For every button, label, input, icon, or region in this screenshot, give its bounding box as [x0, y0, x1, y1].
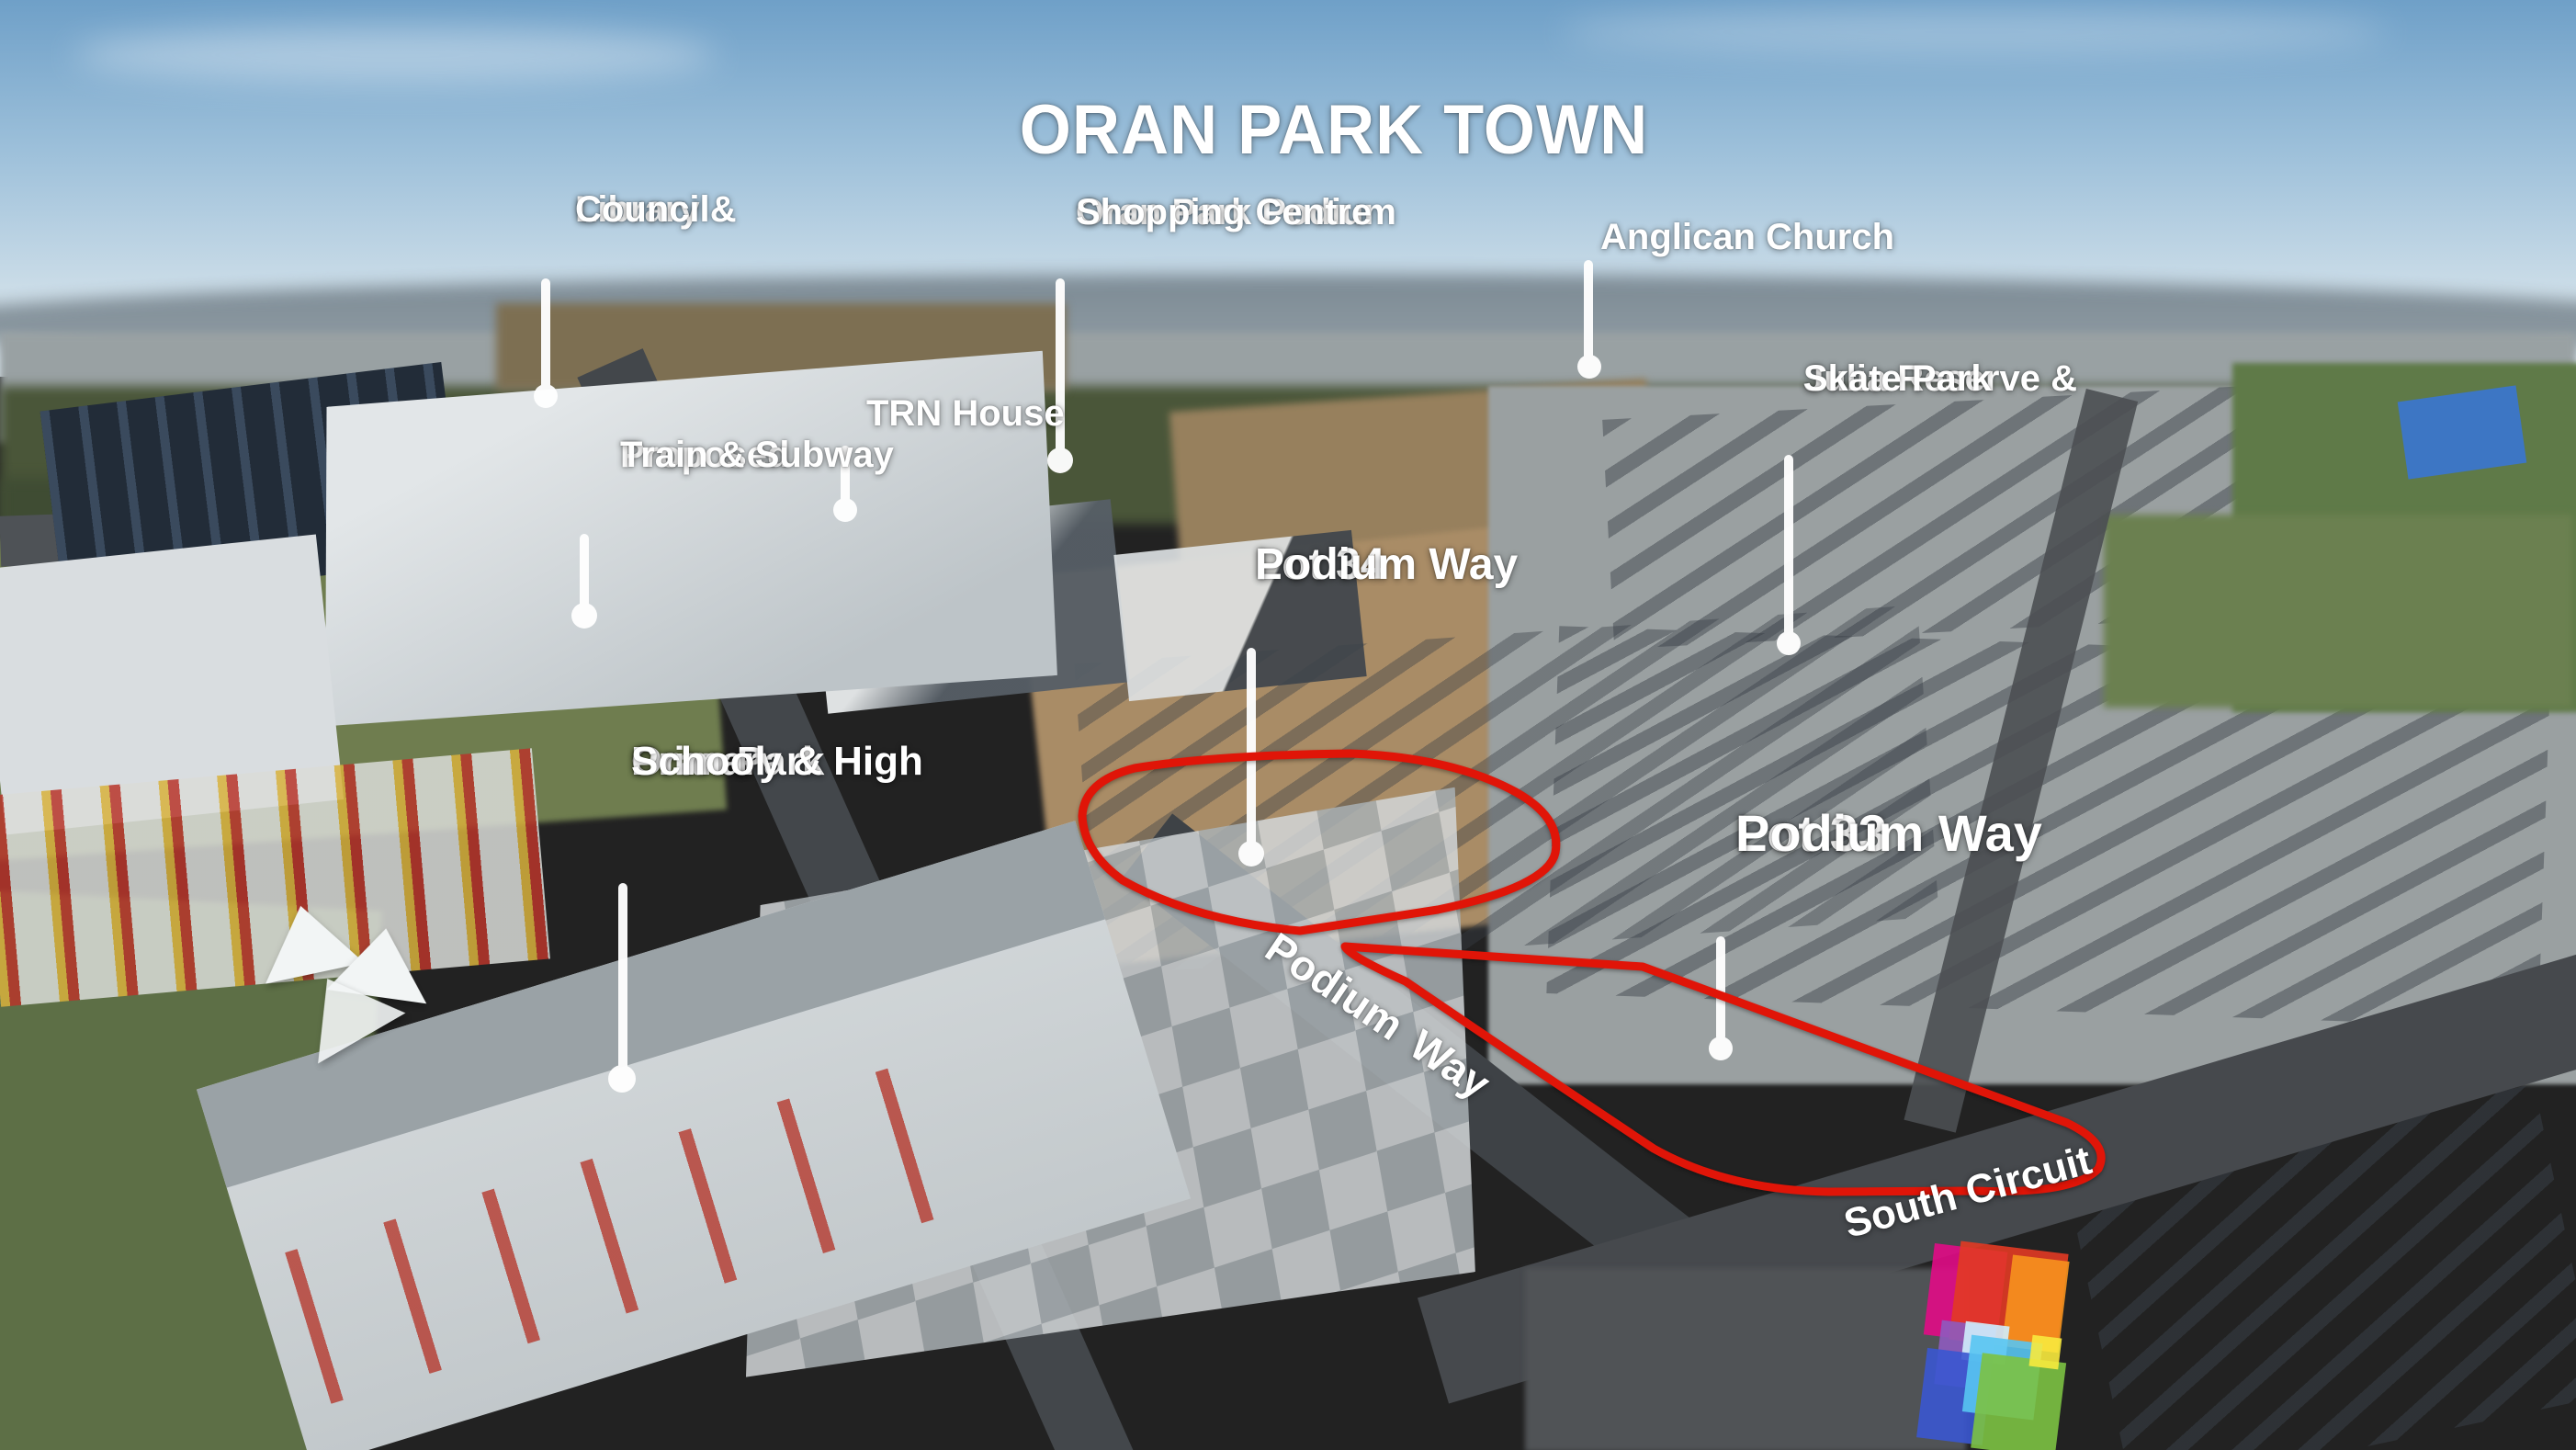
pointer-school	[608, 888, 636, 1093]
logo-square-yellow	[2028, 1335, 2062, 1370]
lot34-red-outline	[1082, 753, 1556, 931]
annotated-aerial-photo: ORAN PARK TOWN Library & Council Oran Pa…	[0, 0, 2576, 1450]
label-line: Council	[575, 186, 710, 233]
pointer-proposed-train	[571, 538, 597, 629]
pointer-anglican-church	[1577, 265, 1601, 379]
oran-park-town-logo	[1911, 1238, 2081, 1450]
pointer-julia-reserve	[1777, 459, 1801, 655]
label-line: School	[631, 735, 766, 787]
label-line: Train & Subway	[620, 428, 894, 482]
page-title: ORAN PARK TOWN	[1020, 90, 1648, 170]
label-line: Podium Way	[1735, 796, 2042, 871]
pointer-shopping-centre	[1047, 283, 1073, 473]
pointer-library-council	[534, 283, 558, 408]
label-line: Skate Park	[1803, 354, 1992, 403]
label-line: TRN House	[866, 393, 1065, 435]
label-line: Anglican Church	[1600, 217, 1894, 258]
label-line: Podium Way	[1255, 537, 1518, 594]
label-line: Shopping Centre	[1076, 188, 1372, 236]
